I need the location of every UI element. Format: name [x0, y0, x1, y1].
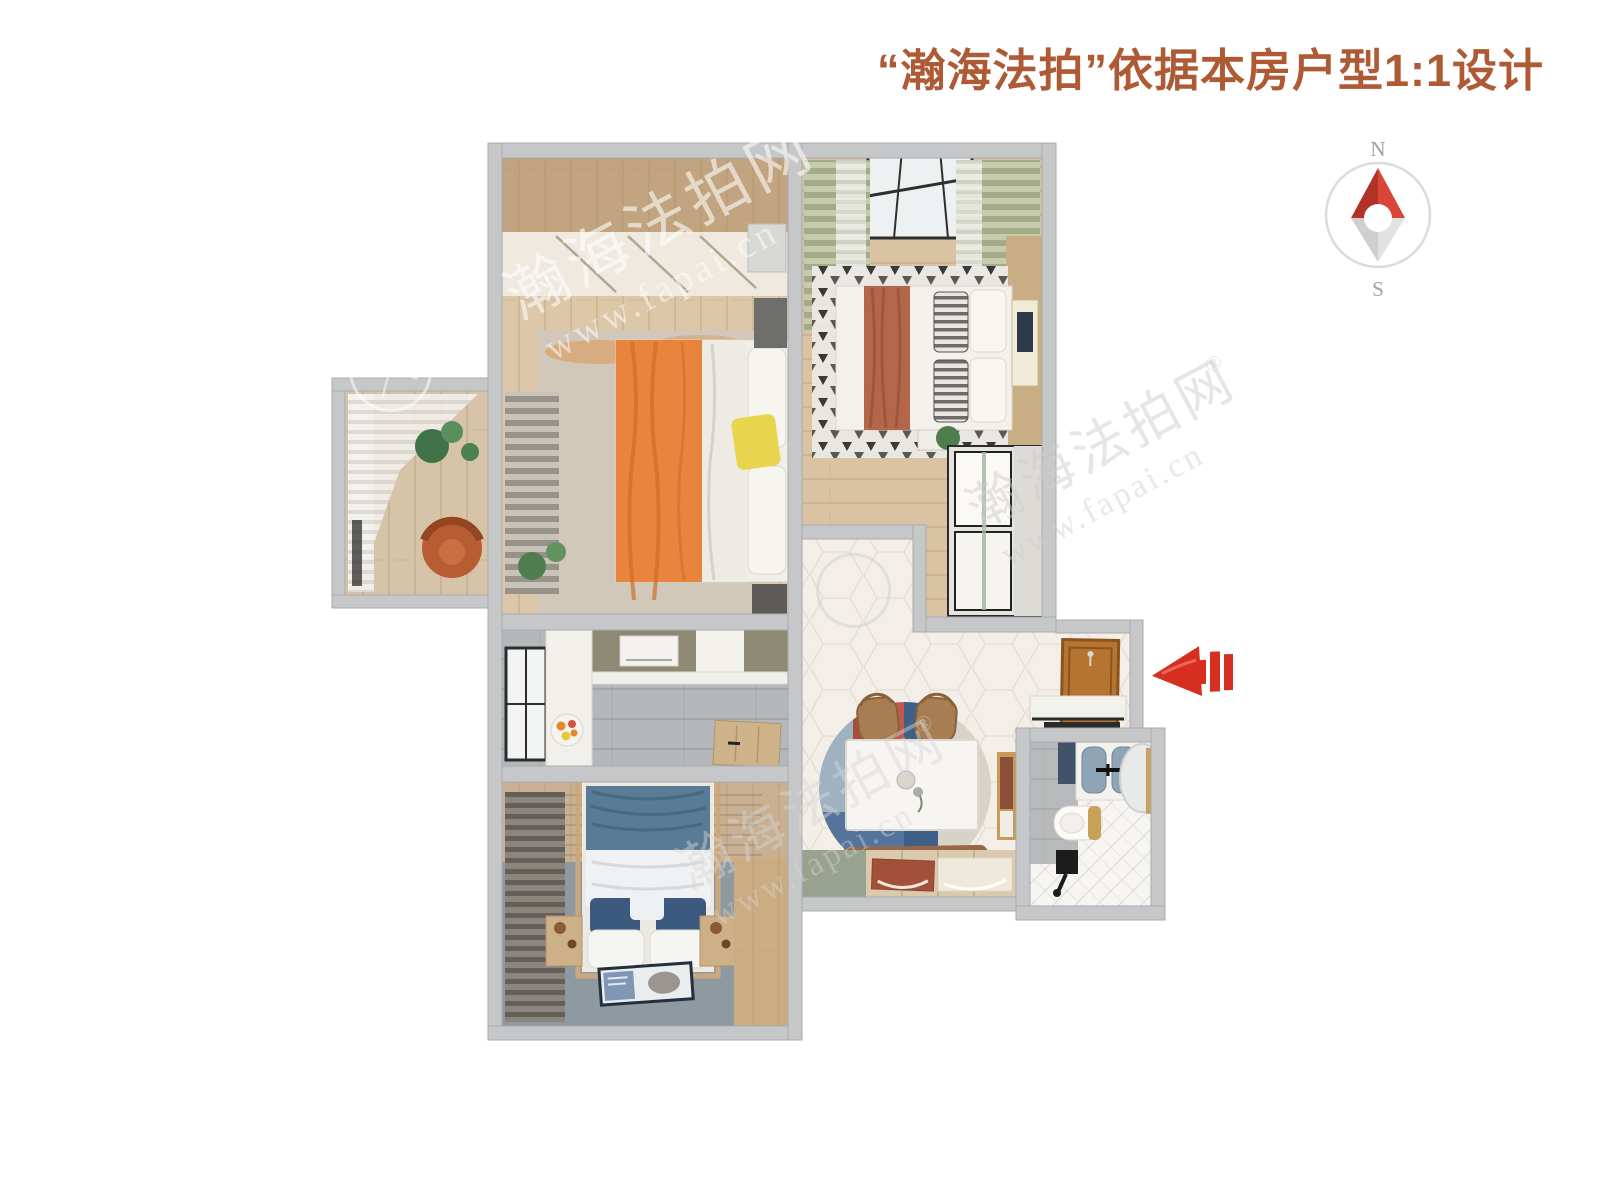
pillow: [588, 930, 644, 968]
compass: N S: [1326, 137, 1430, 301]
pillow: [934, 360, 968, 422]
pillow: [748, 466, 786, 574]
door-mat: [938, 858, 1012, 891]
kitchen: [502, 630, 788, 768]
floorplan-page: 瀚海法拍网 ® www.fapai.cn 瀚海法拍网 ® www.fapai.c…: [0, 0, 1600, 1200]
nightstand: [546, 916, 582, 966]
curtain: [505, 792, 565, 1022]
bathroom: [1030, 742, 1164, 906]
door-track: [1044, 722, 1120, 728]
bed: [616, 340, 788, 600]
range-hood: [620, 636, 678, 666]
page-title: “瀚海法拍”依据本房户型1:1设计: [877, 34, 1544, 99]
cabinet: [754, 298, 787, 348]
balcony-window-frame: [352, 520, 362, 586]
compass-hub: [1364, 204, 1392, 232]
compass-north-label: N: [1370, 137, 1385, 161]
plant: [518, 552, 546, 580]
bed: [836, 286, 1012, 430]
shoe-cabinet: [1030, 696, 1126, 720]
door-mat: [871, 859, 934, 891]
entrance-arrow-icon: [1152, 645, 1233, 698]
rug: [599, 963, 693, 1005]
fruit-bowl: [551, 714, 583, 746]
toilet: [1054, 806, 1102, 840]
balcony: [345, 391, 488, 595]
pillow: [970, 358, 1006, 422]
pillow: [970, 290, 1006, 352]
door-mat: [713, 720, 781, 767]
armchair: [422, 518, 482, 578]
yellow-pillow: [731, 413, 782, 471]
wall-art: [997, 752, 1016, 840]
pillow: [934, 292, 968, 352]
compass-south-label: S: [1372, 277, 1384, 301]
floor-plan: 瀚海法拍网 ® www.fapai.cn 瀚海法拍网 ® www.fapai.c…: [0, 0, 1600, 1200]
